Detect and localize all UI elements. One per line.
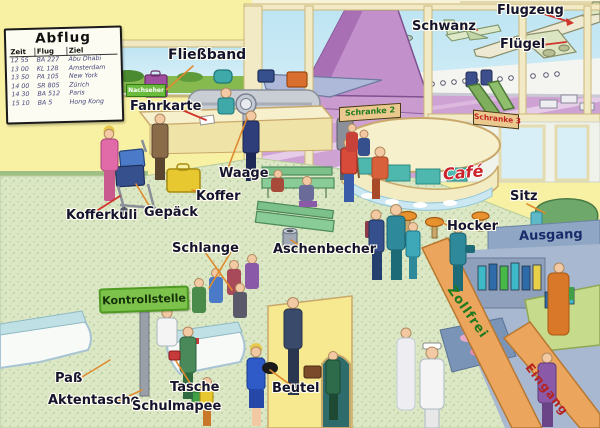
departure-board: Abflug Zeit Flug Ziel 12 55BA 227Abu Dha…	[4, 25, 124, 124]
sign-nachseher: Nachseher	[126, 84, 166, 97]
label-koffer: Koffer	[196, 189, 241, 204]
label-gepaeck: Gepäck	[144, 205, 198, 220]
label-fluegel: Flügel	[500, 37, 545, 52]
departure-table: Zeit Flug Ziel 12 55BA 227Abu Dhabi 13 0…	[9, 46, 119, 109]
label-schulmapee: Schulmapee	[132, 399, 221, 414]
label-kofferkuli: Kofferkuli	[66, 208, 137, 223]
sign-kontrollstelle: Kontrollstelle	[99, 285, 190, 313]
label-aktentasche: Aktentasche	[48, 393, 140, 408]
sign-cafe: Café	[442, 161, 484, 183]
label-flugzeug: Flugzeug	[497, 3, 564, 18]
label-pass: Paß	[55, 371, 82, 386]
label-fahrkarte: Fahrkarte	[130, 99, 201, 114]
label-fliessband: Fließband	[168, 47, 246, 63]
label-hocker: Hocker	[447, 219, 498, 234]
label-schlange: Schlange	[172, 241, 239, 256]
departure-board-title: Abflug	[9, 29, 117, 48]
sign-ausgang: Ausgang	[519, 227, 583, 244]
label-aschenbecher: Aschenbecher	[273, 242, 376, 257]
label-sitz: Sitz	[510, 189, 538, 204]
sign-post	[140, 310, 149, 396]
label-schwanz: Schwanz	[412, 19, 476, 34]
label-tasche: Tasche	[170, 380, 219, 395]
airport-picture-dictionary: Abflug Zeit Flug Ziel 12 55BA 227Abu Dha…	[0, 0, 600, 428]
label-beutel: Beutel	[272, 381, 319, 396]
label-waage: Waage	[219, 166, 269, 181]
